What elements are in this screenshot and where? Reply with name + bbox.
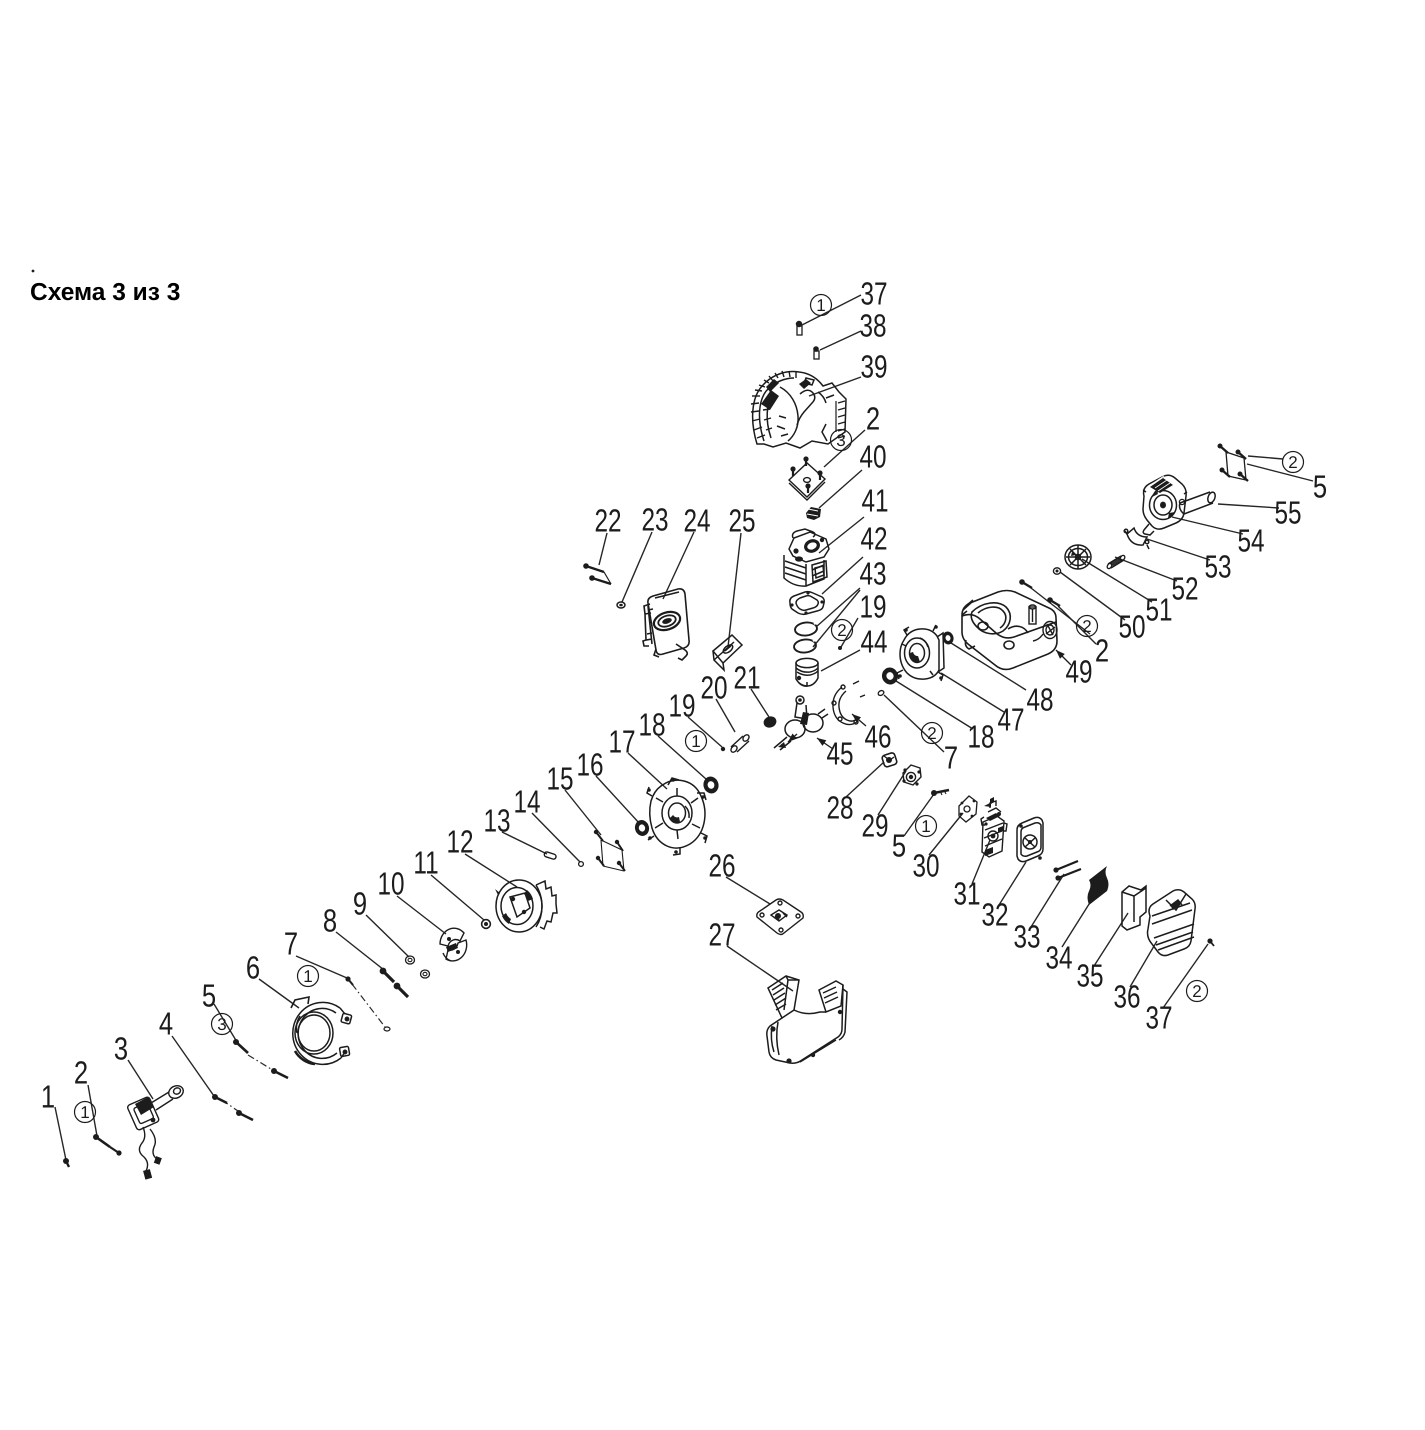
svg-text:29: 29 [861,808,888,844]
svg-text:14: 14 [513,784,540,820]
svg-text:23: 23 [641,502,668,538]
svg-text:1: 1 [303,967,312,986]
svg-text:44: 44 [860,624,887,660]
svg-text:12: 12 [446,824,473,860]
svg-text:52: 52 [1171,571,1198,607]
svg-text:2: 2 [1095,633,1109,669]
svg-text:7: 7 [284,926,298,962]
svg-text:7: 7 [944,740,958,776]
svg-text:37: 37 [860,276,887,312]
svg-text:1: 1 [691,732,700,751]
svg-text:43: 43 [859,556,886,592]
svg-text:8: 8 [323,903,337,939]
svg-text:49: 49 [1065,654,1092,690]
svg-text:4: 4 [159,1006,173,1042]
svg-text:37: 37 [1145,1000,1172,1036]
svg-text:36: 36 [1113,979,1140,1015]
svg-text:27: 27 [708,917,735,953]
svg-text:45: 45 [826,736,853,772]
svg-text:31: 31 [953,876,980,912]
svg-text:16: 16 [576,747,603,783]
svg-text:35: 35 [1076,958,1103,994]
svg-text:1: 1 [921,817,930,836]
svg-text:21: 21 [733,660,760,696]
svg-text:13: 13 [483,803,510,839]
svg-text:55: 55 [1274,495,1301,531]
svg-text:26: 26 [708,848,735,884]
svg-text:1: 1 [816,296,825,315]
svg-text:2: 2 [866,401,880,437]
svg-text:20: 20 [700,670,727,706]
svg-text:19: 19 [859,589,886,625]
svg-text:Схема 3 из 3: Схема 3 из 3 [30,279,180,306]
svg-text:2: 2 [837,621,846,640]
svg-text:17: 17 [608,724,635,760]
svg-text:33: 33 [1013,919,1040,955]
svg-text:51: 51 [1145,592,1172,628]
svg-text:6: 6 [246,950,260,986]
svg-text:24: 24 [683,503,710,539]
svg-text:47: 47 [997,702,1024,738]
svg-text:40: 40 [859,439,886,475]
svg-text:38: 38 [859,308,886,344]
svg-text:15: 15 [546,761,573,797]
svg-text:48: 48 [1026,682,1053,718]
svg-text:28: 28 [826,790,853,826]
svg-text:42: 42 [860,521,887,557]
svg-text:25: 25 [728,503,755,539]
svg-text:2: 2 [927,724,936,743]
svg-text:11: 11 [413,845,438,881]
svg-text:19: 19 [668,688,695,724]
svg-text:41: 41 [861,483,888,519]
svg-text:54: 54 [1237,523,1264,559]
svg-text:39: 39 [860,349,887,385]
svg-text:2: 2 [1082,617,1091,636]
svg-text:50: 50 [1118,609,1145,645]
svg-text:5: 5 [892,828,906,864]
svg-text:53: 53 [1204,549,1231,585]
svg-text:3: 3 [114,1031,128,1067]
svg-text:46: 46 [864,719,891,755]
svg-text:5: 5 [1313,469,1327,505]
svg-text:2: 2 [74,1055,88,1091]
svg-text:3: 3 [836,431,845,450]
svg-text:32: 32 [981,897,1008,933]
svg-text:9: 9 [353,886,367,922]
svg-text:1: 1 [80,1103,89,1122]
svg-text:2: 2 [1192,982,1201,1001]
svg-text:18: 18 [638,707,665,743]
svg-text:30: 30 [912,848,939,884]
svg-text:18: 18 [967,719,994,755]
svg-text:5: 5 [202,978,216,1014]
svg-text:34: 34 [1045,940,1072,976]
svg-text:22: 22 [594,503,621,539]
svg-text:10: 10 [377,866,404,902]
svg-text:2: 2 [1288,453,1297,472]
svg-text:3: 3 [217,1015,226,1034]
svg-text:1: 1 [41,1079,55,1115]
